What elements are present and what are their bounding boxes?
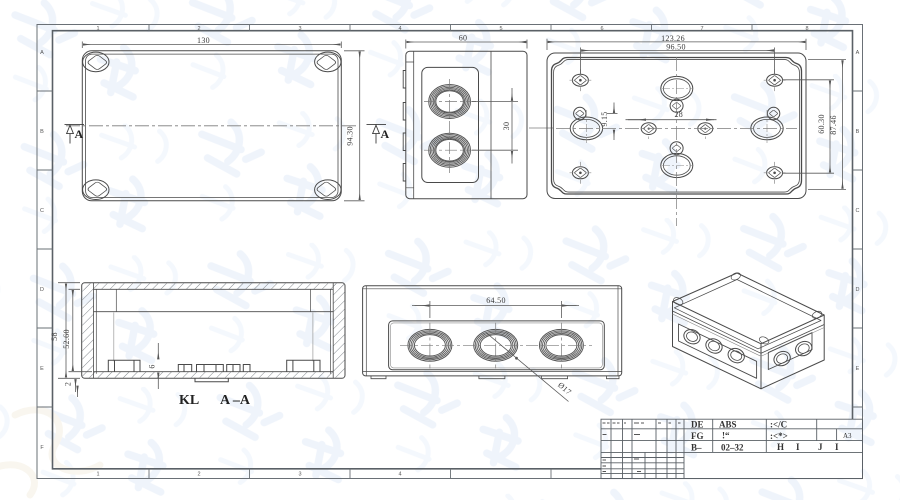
svg-text:FG: FG (691, 431, 704, 441)
svg-text:6: 6 (148, 364, 157, 368)
svg-text:96.50: 96.50 (666, 43, 686, 52)
svg-text:A3: A3 (843, 432, 852, 440)
svg-text:D: D (40, 287, 44, 293)
svg-text:A: A (75, 127, 84, 141)
svg-text:E: E (40, 366, 44, 372)
svg-text:C: C (40, 208, 44, 214)
svg-text:1: 1 (96, 26, 99, 32)
svg-text:87.46: 87.46 (829, 115, 838, 135)
svg-text:A: A (856, 50, 860, 56)
svg-text:A: A (381, 127, 390, 141)
svg-text:!“: !“ (722, 430, 730, 440)
svg-text:6: 6 (600, 26, 603, 32)
svg-text:58: 58 (50, 332, 59, 341)
svg-text:A –A: A –A (220, 393, 251, 408)
svg-text:B: B (40, 129, 44, 135)
svg-text:28: 28 (674, 110, 683, 119)
svg-text:3: 3 (298, 26, 301, 32)
svg-text:02–32: 02–32 (721, 443, 744, 453)
svg-text:64.50: 64.50 (486, 296, 506, 305)
svg-text:I: I (796, 442, 800, 452)
svg-text:4: 4 (398, 26, 401, 32)
svg-text:2: 2 (64, 382, 73, 386)
svg-text:E: E (856, 366, 860, 372)
svg-text:60: 60 (459, 33, 468, 42)
svg-text:60.30: 60.30 (817, 114, 826, 134)
svg-text:ABS: ABS (719, 419, 737, 429)
svg-text:5: 5 (499, 26, 502, 32)
svg-text:94.30: 94.30 (346, 126, 355, 146)
svg-text:2: 2 (197, 26, 200, 32)
svg-text:7: 7 (700, 26, 703, 32)
svg-text:8: 8 (805, 26, 808, 32)
svg-text:I: I (835, 442, 839, 452)
svg-text:A: A (40, 50, 44, 56)
svg-text:3: 3 (298, 472, 301, 478)
svg-text:D: D (856, 287, 860, 293)
svg-text:J: J (818, 442, 823, 452)
svg-text::</C: :</C (770, 419, 787, 429)
svg-text:52.60: 52.60 (62, 329, 71, 349)
svg-text:H: H (777, 442, 784, 452)
svg-text:2: 2 (197, 472, 200, 478)
svg-text:B: B (856, 129, 860, 135)
svg-text:4: 4 (398, 472, 401, 478)
svg-text:30: 30 (502, 122, 511, 131)
svg-text:130: 130 (197, 36, 210, 45)
svg-text:B–: B– (691, 443, 702, 453)
svg-text::<*>: :<*> (770, 431, 788, 441)
svg-text:9.15: 9.15 (600, 111, 609, 126)
svg-text:KL: KL (179, 393, 199, 408)
svg-text:C: C (856, 208, 860, 214)
svg-text:DE: DE (691, 419, 704, 429)
svg-text:1: 1 (96, 472, 99, 478)
